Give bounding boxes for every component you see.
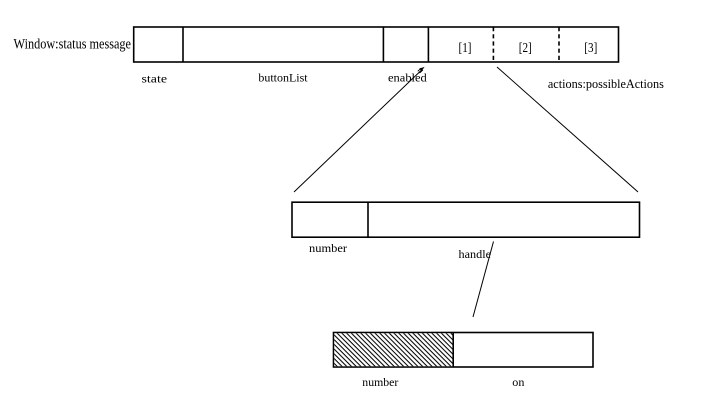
svg-text:enabled: enabled — [388, 71, 427, 85]
svg-text:number: number — [309, 241, 347, 255]
svg-text:[3]: [3] — [584, 40, 597, 55]
svg-text:state: state — [142, 72, 168, 86]
svg-text:[2]: [2] — [519, 40, 532, 55]
svg-text:number: number — [362, 375, 398, 389]
svg-text:handle: handle — [459, 247, 492, 261]
svg-text:buttonList: buttonList — [258, 71, 308, 85]
svg-text:Window:status message: Window:status message — [14, 37, 132, 53]
svg-text:actions:possibleActions: actions:possibleActions — [548, 77, 664, 91]
svg-text:on: on — [512, 375, 524, 389]
svg-text:[1]: [1] — [459, 40, 472, 55]
